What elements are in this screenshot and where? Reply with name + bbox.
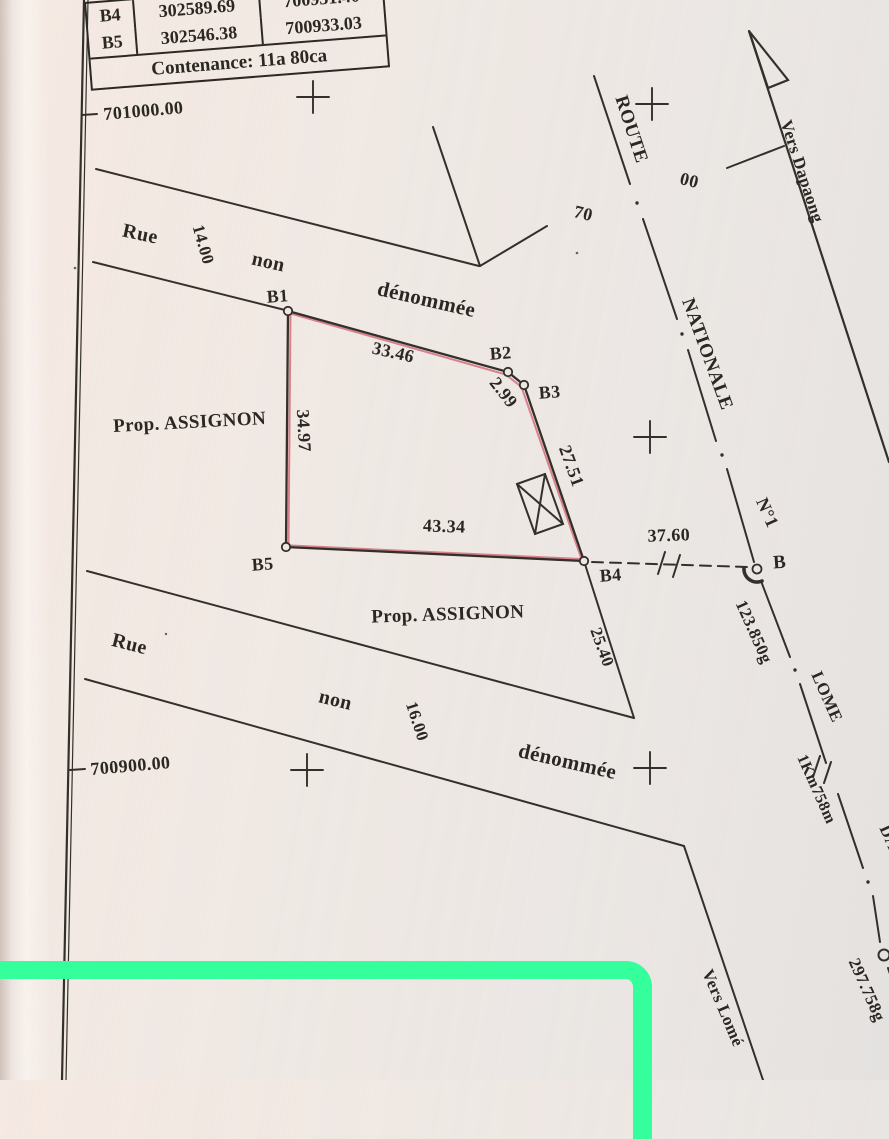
street-north-denommee: dénommée bbox=[375, 276, 478, 322]
route-west-edge-south bbox=[684, 846, 763, 1080]
street-north-spur bbox=[480, 226, 547, 266]
label-b4: B4 bbox=[599, 564, 622, 585]
table-cell-point: B4 bbox=[86, 0, 136, 31]
street-south-non: non bbox=[317, 685, 355, 714]
len-b5-b4: 43.34 bbox=[423, 515, 466, 536]
angle-at-b: 123.850g bbox=[732, 597, 777, 666]
label-b: B bbox=[772, 552, 787, 574]
grid-label-south: 700900.00 bbox=[90, 752, 172, 779]
scan-speck bbox=[74, 252, 579, 636]
structure-symbol bbox=[517, 474, 563, 534]
route-dapaong: DAPAONG bbox=[876, 822, 889, 910]
route-east-tick bbox=[727, 146, 784, 168]
scanned-survey-plan: { "table": { "rows": [ {"point": "B4", "… bbox=[0, 0, 889, 1080]
street-north-top-edge bbox=[96, 169, 479, 266]
route-nationale: NATIONALE bbox=[677, 295, 737, 412]
street-north-rue: Rue bbox=[121, 220, 160, 249]
street-south-rue: Rue bbox=[109, 629, 149, 659]
len-b3-b4: 27.51 bbox=[555, 443, 588, 490]
label-b1: B1 bbox=[266, 285, 289, 306]
len-b4-corner: 25.40 bbox=[586, 625, 618, 669]
north-arrow bbox=[749, 31, 788, 88]
label-b5: B5 bbox=[251, 553, 274, 574]
grid-tick-south bbox=[70, 769, 85, 770]
grid-label-north: 701000.00 bbox=[103, 97, 185, 124]
owner-south: Prop. ASSIGNON bbox=[371, 601, 525, 627]
grid-cross bbox=[291, 81, 668, 786]
station-point bbox=[879, 950, 889, 961]
plan-linework: 701000.00 700900.00 Rue 14.00 non dénomm… bbox=[0, 0, 889, 1080]
route-east-edge bbox=[749, 31, 889, 462]
tie-b4-b: 37.60 bbox=[647, 524, 690, 545]
street-south-width: 16.00 bbox=[402, 699, 433, 743]
street-north-width: 14.00 bbox=[189, 223, 218, 267]
frame-line-inner bbox=[66, 0, 88, 1080]
len-b1-b2: 33.46 bbox=[370, 338, 416, 367]
route-n1: N°1 bbox=[752, 495, 783, 531]
street-south-denommee: dénommée bbox=[516, 738, 619, 784]
route-num-00: 00 bbox=[678, 168, 701, 192]
route-lome: LOME bbox=[807, 668, 846, 725]
label-b3: B3 bbox=[538, 381, 561, 402]
street-north-non: non bbox=[250, 248, 288, 277]
owner-west: Prop. ASSIGNON bbox=[113, 408, 267, 437]
table-cell-point: B5 bbox=[88, 27, 138, 58]
grid-tick-north bbox=[82, 114, 97, 115]
vers-dapaong: Vers Dapaong bbox=[777, 118, 828, 225]
label-b2: B2 bbox=[489, 342, 512, 363]
frame-line bbox=[62, 0, 84, 1080]
len-b1-b5: 34.97 bbox=[293, 409, 315, 452]
route-centerline bbox=[594, 76, 889, 983]
street-south-top-edge bbox=[87, 571, 634, 718]
route-num-70: 70 bbox=[572, 201, 595, 225]
route-west-edge-north bbox=[433, 127, 480, 266]
route-bearing: 297.758g bbox=[845, 955, 889, 1024]
axis-point-b-marker bbox=[753, 565, 762, 574]
route-km: 1Km758m bbox=[793, 752, 839, 827]
vers-lome: Vers Lomé bbox=[698, 966, 747, 1049]
